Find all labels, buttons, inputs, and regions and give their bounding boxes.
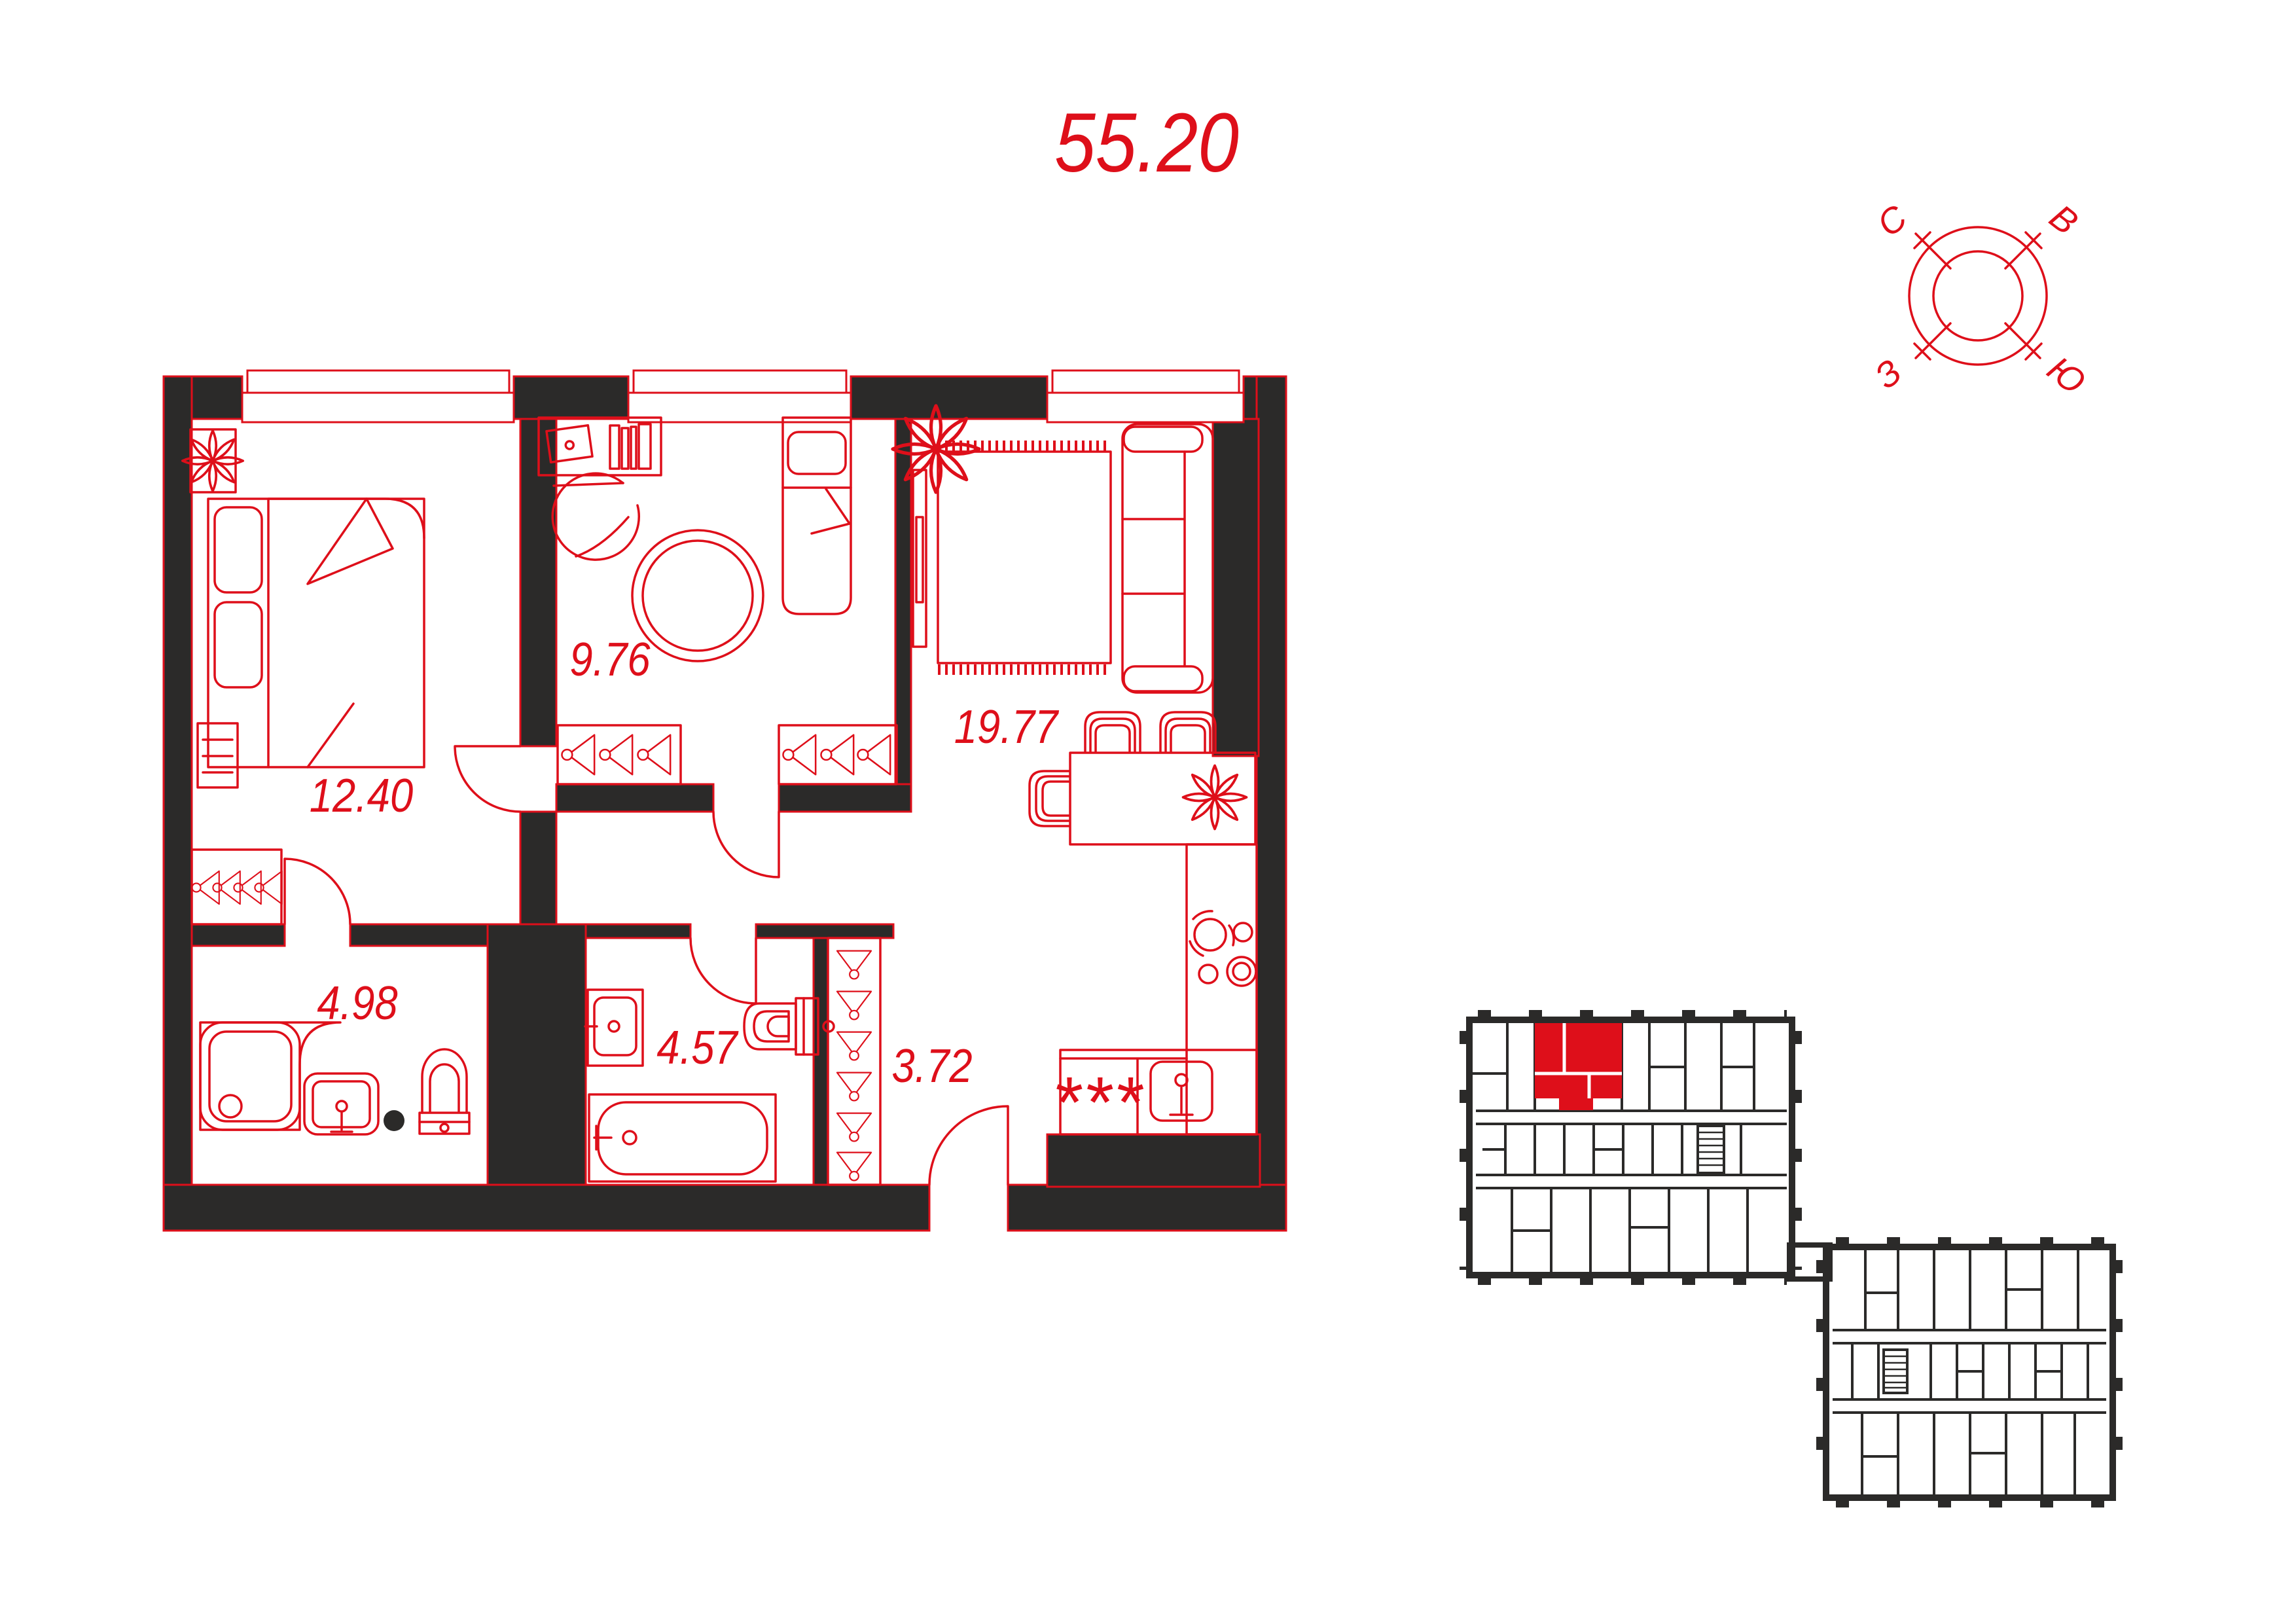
wardrobe-hangers [558,725,681,784]
washbasin-icon [304,1074,378,1134]
page-title: 55.20 [1054,96,1239,189]
wardrobe-hangers [192,850,282,924]
kitchen-living-room: *** 19.77 [893,406,1257,1143]
room-2: 9.76 [539,418,897,784]
entrance-door [929,1106,1008,1185]
bathroom-ensuite: 4.98 [200,977,469,1134]
highlighted-unit[interactable] [1535,1023,1622,1110]
wardrobe-hangers [828,938,880,1185]
floorplan-page: 55.20 С В З Ю [0,0,2296,1624]
cooktop-icon [1190,911,1256,986]
dresser-icon [198,723,238,787]
door-ensuite-bathroom [285,859,350,924]
bathroom2-area-label: 4.57 [656,1022,738,1074]
kitchen-sink-icon [1151,1062,1212,1121]
door-bathroom2 [691,938,756,1003]
hallway: 3.72 [828,938,973,1185]
door-room [713,812,779,877]
washer-mark: *** [1052,1062,1144,1143]
compass-west-label: З [1867,352,1909,397]
bedroom: 12.40 [183,429,424,924]
window [1047,370,1244,422]
building-overview [1465,1015,2117,1502]
window [242,370,514,422]
hallway-area-label: 3.72 [891,1040,972,1092]
total-area-label: 55.20 [1054,96,1239,189]
bathtub-icon [589,1094,776,1182]
door-bedroom [455,746,520,812]
bathroom-2: 4.57 [585,990,834,1182]
wardrobe-hangers [779,725,897,784]
washbasin-icon [585,990,643,1066]
office-chair-icon [552,473,639,560]
mirror-console [913,470,926,647]
compass-east-label: В [2042,197,2085,242]
toilet-icon [420,1049,469,1134]
shower-icon [200,1022,340,1130]
window [628,370,851,422]
room2-area-label: 9.76 [569,634,651,686]
sofa-icon [1122,424,1213,693]
building-block-a [1465,1015,1797,1280]
building-block-b [1821,1242,2117,1502]
single-bed-icon [783,418,851,614]
stairs-icon [1884,1350,1907,1393]
floor-plan: 12.40 [164,370,1286,1231]
floor-drain [384,1110,404,1131]
kitchen-living-area-label: 19.77 [954,701,1060,753]
double-bed-icon [208,499,424,767]
bathroom-area-label: 4.98 [317,977,398,1030]
stairs-icon [1698,1126,1724,1173]
plant-icon [1183,766,1247,829]
bedroom-area-label: 12.40 [310,770,414,822]
compass-south-label: Ю [2040,349,2092,402]
round-rug [632,530,763,661]
compass-icon: С В З Ю [1867,197,2092,402]
compass-north-label: С [1870,198,1914,245]
